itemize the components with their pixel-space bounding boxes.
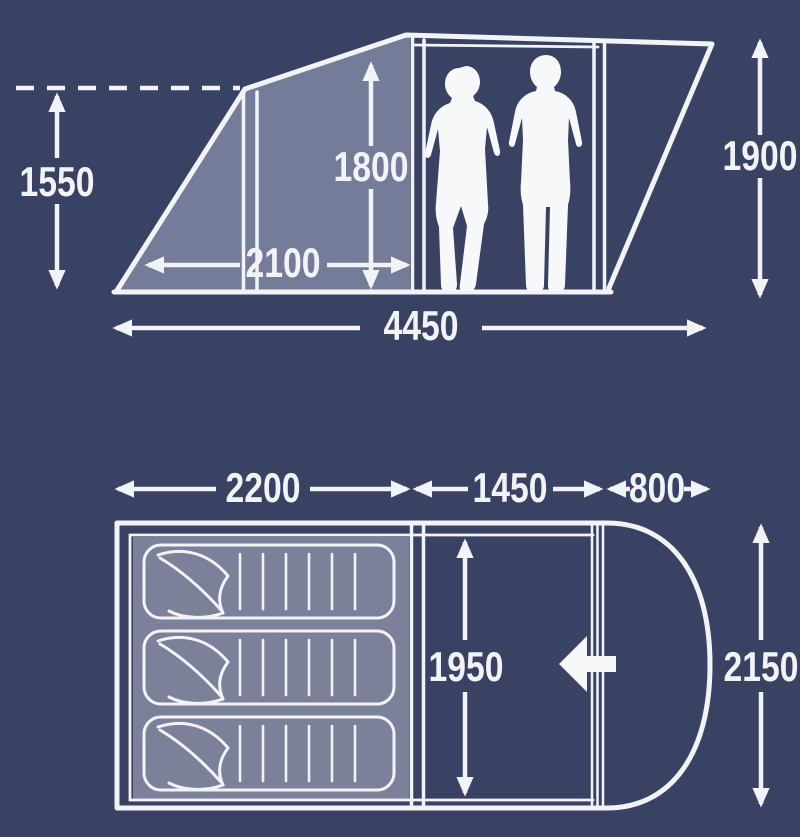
tent-dimensions-diagram: 1550 1800 1900 2100 4450 [0,0,800,837]
dimension-interior-depth: 1950 [429,542,504,793]
diagram-svg: 1550 1800 1900 2100 4450 [0,0,800,837]
dimension-total-depth: 2150 [724,527,799,804]
rear-height-label: 1900 [723,132,798,179]
door-width-label: 800 [629,464,685,511]
porch-width-label: 2100 [246,239,321,286]
person-silhouette-woman [425,66,500,291]
sleeping-divider-lines [412,523,424,808]
interior-depth-label: 1950 [429,643,504,690]
dimension-living-width: 1450 [416,464,600,511]
entrance-arrow [559,636,616,692]
dimension-door-width: 800 [610,464,707,511]
interior-height-label: 1800 [334,143,409,190]
rear-wall-lines [594,43,605,292]
dimension-sleeping-width: 2200 [118,464,407,511]
living-width-label: 1450 [473,464,548,511]
sleeping-area-shading [133,537,409,799]
total-length-label: 4450 [384,302,459,349]
dimension-rear-height: 1900 [723,42,798,295]
inner-ceiling-line [414,45,598,47]
porch-divider-lines [413,38,425,292]
side-view: 1550 1800 1900 2100 4450 [16,35,798,349]
dimension-total-length: 4450 [116,302,703,349]
front-height-label: 1550 [20,158,95,205]
dimension-front-height: 1550 [20,96,95,286]
person-silhouette-man [509,55,582,291]
total-depth-label: 2150 [724,643,799,690]
sleeping-width-label: 2200 [226,464,301,511]
floor-plan: 2200 1450 800 1950 2150 [117,464,799,808]
